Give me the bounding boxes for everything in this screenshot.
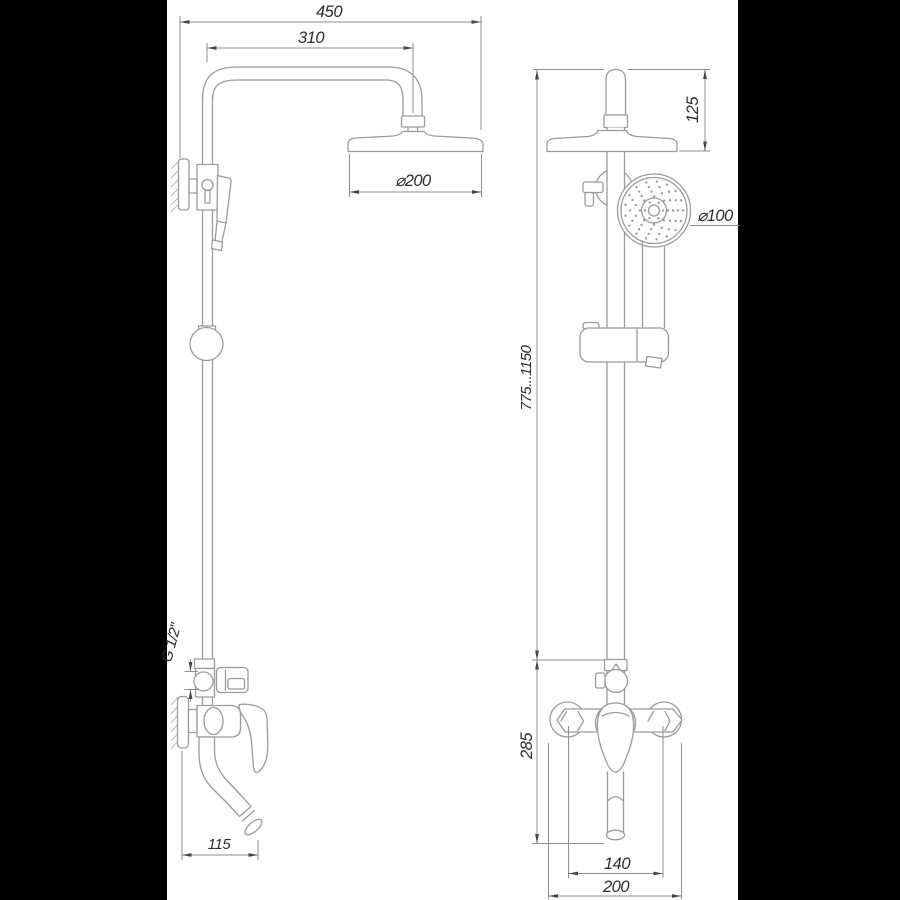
inlet-stub <box>189 710 198 733</box>
dimension-label: 125 <box>684 96 702 123</box>
wall-hatching <box>171 161 179 212</box>
spout-front-edges <box>608 772 624 833</box>
mixer-lever-front <box>597 703 633 772</box>
arrowhead <box>569 872 579 876</box>
dimension-hand-shower-diameter: ⌀100 <box>690 207 740 226</box>
knob-circle <box>605 670 628 693</box>
hand-shower-handle <box>643 241 665 328</box>
diverter-handle <box>583 182 603 193</box>
diverter-valve-side <box>194 659 248 697</box>
arrowhead <box>472 190 482 194</box>
arrowhead <box>404 46 414 50</box>
hand-shower-front <box>618 174 691 328</box>
wall-flange <box>178 697 189 749</box>
hand-shower-rim <box>618 174 691 247</box>
dimension-label: 200 <box>602 878 630 896</box>
bracket-slot <box>205 191 210 204</box>
arm-inner-edge <box>213 80 404 116</box>
slider-ball <box>190 328 223 361</box>
bracket-hole <box>202 180 213 191</box>
wall-bracket <box>171 159 231 251</box>
mixer-front <box>550 702 682 840</box>
dimension-label: 775...1150 <box>518 344 535 410</box>
valve-port <box>194 672 213 691</box>
arrowhead <box>535 834 539 844</box>
spout-front-arc <box>608 797 624 801</box>
front-view: ⌀100 <box>518 70 740 900</box>
dimension-label: ⌀100 <box>697 207 734 225</box>
arrowhead <box>549 894 559 898</box>
arrowhead <box>535 70 539 80</box>
arrowhead <box>535 651 539 661</box>
dimension-label: 115 <box>208 836 232 853</box>
arrowhead <box>672 894 682 898</box>
pipe-top-collar <box>604 115 628 128</box>
arrowhead <box>654 872 664 876</box>
pipe-top-cap <box>606 70 626 116</box>
knob-tab <box>596 673 606 688</box>
dimension-label: ⌀200 <box>395 172 432 190</box>
slider-knob-side <box>190 326 223 361</box>
bracket-connector <box>189 179 197 193</box>
holder-body <box>580 328 669 362</box>
arrowhead <box>703 70 707 80</box>
dimension-label: 285 <box>518 732 536 760</box>
dimension-arm-projection: 310 <box>207 29 413 113</box>
technical-drawing-page: 450 310 <box>0 0 900 900</box>
arm-collar-nut <box>402 116 425 127</box>
arrowhead <box>249 853 259 857</box>
overhead-shower-head-front <box>547 131 677 152</box>
arrowhead <box>207 46 217 50</box>
dimension-mixer-height: 285 <box>518 660 604 844</box>
spout-front-outlet <box>607 830 625 840</box>
shower-system-drawing: 450 310 <box>0 0 900 900</box>
side-view: 450 310 <box>158 3 483 860</box>
arrowhead <box>350 190 360 194</box>
letterbox-right <box>738 0 900 900</box>
spout-outlet <box>243 817 265 838</box>
arrowhead <box>189 690 193 700</box>
arrowhead <box>535 660 539 670</box>
spout-side <box>199 737 251 817</box>
dimension-head-diameter: ⌀200 <box>350 154 482 197</box>
mixer-lever-side <box>239 704 268 772</box>
hand-shower-blade <box>215 176 232 249</box>
slider-holder-front <box>580 323 669 369</box>
hand-shower-end-cap <box>212 240 223 251</box>
letterbox-left <box>0 0 167 900</box>
arm-stem <box>408 127 418 132</box>
overhead-shower-head-side <box>348 132 483 152</box>
arrowhead <box>189 662 193 672</box>
dimension-label: 450 <box>316 3 343 21</box>
arrowhead <box>472 20 482 24</box>
dimension-label: 310 <box>298 29 325 47</box>
arrowhead <box>180 20 190 24</box>
wall-plate <box>179 159 190 210</box>
arrowhead <box>703 142 707 152</box>
dimension-column-height: 775...1150 <box>518 70 604 661</box>
dimension-label: 140 <box>604 855 631 873</box>
arm-outer-edge <box>203 67 423 116</box>
valve-collar <box>195 659 215 669</box>
shower-arm <box>203 67 425 132</box>
mixer-side <box>171 697 268 838</box>
diverter-handle-stub <box>585 193 594 207</box>
holder-release-tab <box>646 357 663 369</box>
arrowhead <box>182 853 192 857</box>
